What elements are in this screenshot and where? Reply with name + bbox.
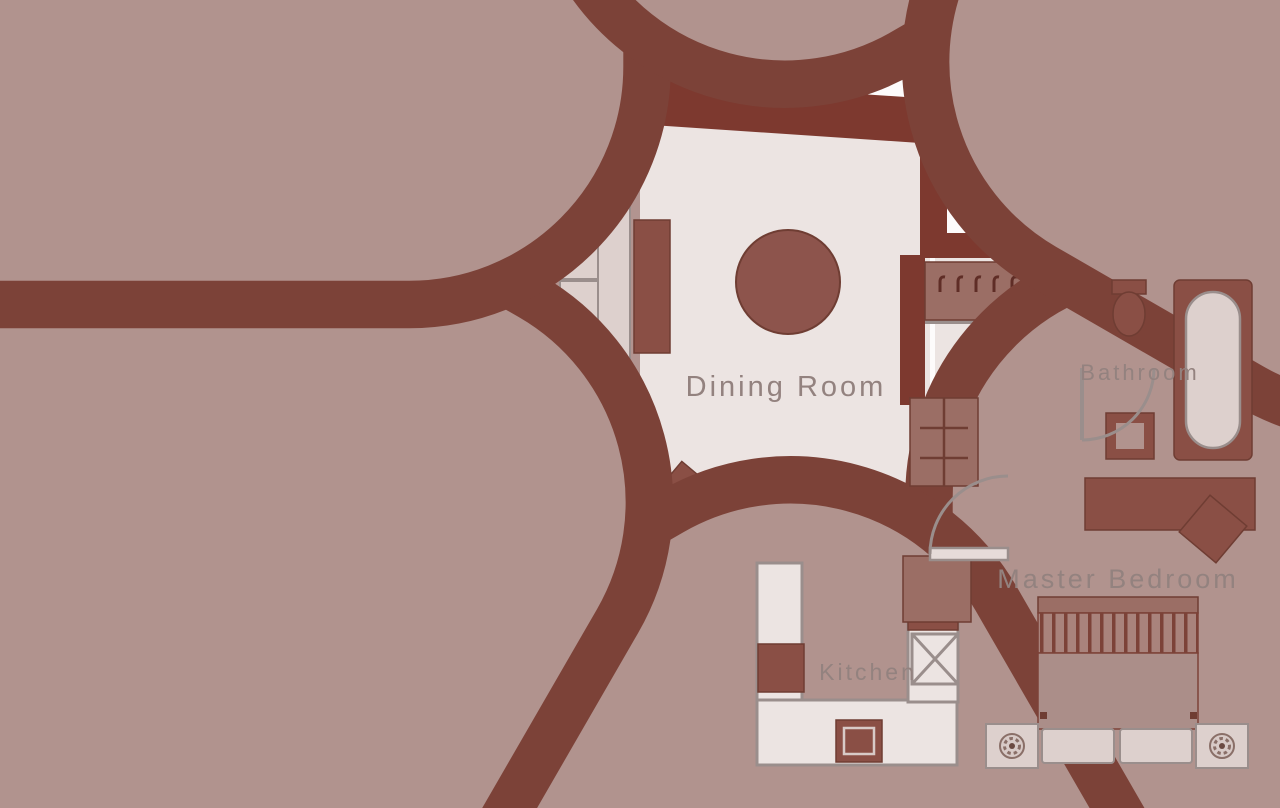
flower-icon [1210, 734, 1234, 758]
foot-bench-cushion [1042, 729, 1114, 763]
bed-canopy [1038, 613, 1198, 653]
dining-table [736, 230, 840, 334]
master-bed [1038, 597, 1198, 729]
bed-corner-mark [1040, 712, 1047, 719]
master-bedroom-label: Master Bedroom [997, 564, 1239, 594]
bed-headboard [1038, 597, 1198, 613]
wardrobe-column [910, 398, 978, 486]
master-door-leaf [930, 548, 1008, 560]
stove [758, 644, 804, 692]
floor-plan: GuestBedroom Bathroom [0, 0, 1280, 808]
tv-console [634, 220, 670, 353]
floor-plan-page: GuestBedroom Bathroom [0, 0, 1280, 808]
kitchen-sink [836, 720, 882, 762]
dishwasher [912, 634, 958, 684]
bathroom-right-label: Bathroom [1080, 360, 1199, 385]
bed-duvet [1038, 653, 1198, 729]
kitchen-label: Kitchen [819, 659, 917, 685]
toilet-bowl [1113, 292, 1145, 336]
bed-corner-mark [1190, 712, 1197, 719]
flower-icon [1000, 734, 1024, 758]
dining-separator-wall [900, 255, 925, 405]
foot-bench-cushion [1120, 729, 1192, 763]
hall-cabinet [903, 556, 971, 622]
dining-room-label: Dining Room [686, 371, 887, 403]
dining-chair [0, 0, 647, 304]
